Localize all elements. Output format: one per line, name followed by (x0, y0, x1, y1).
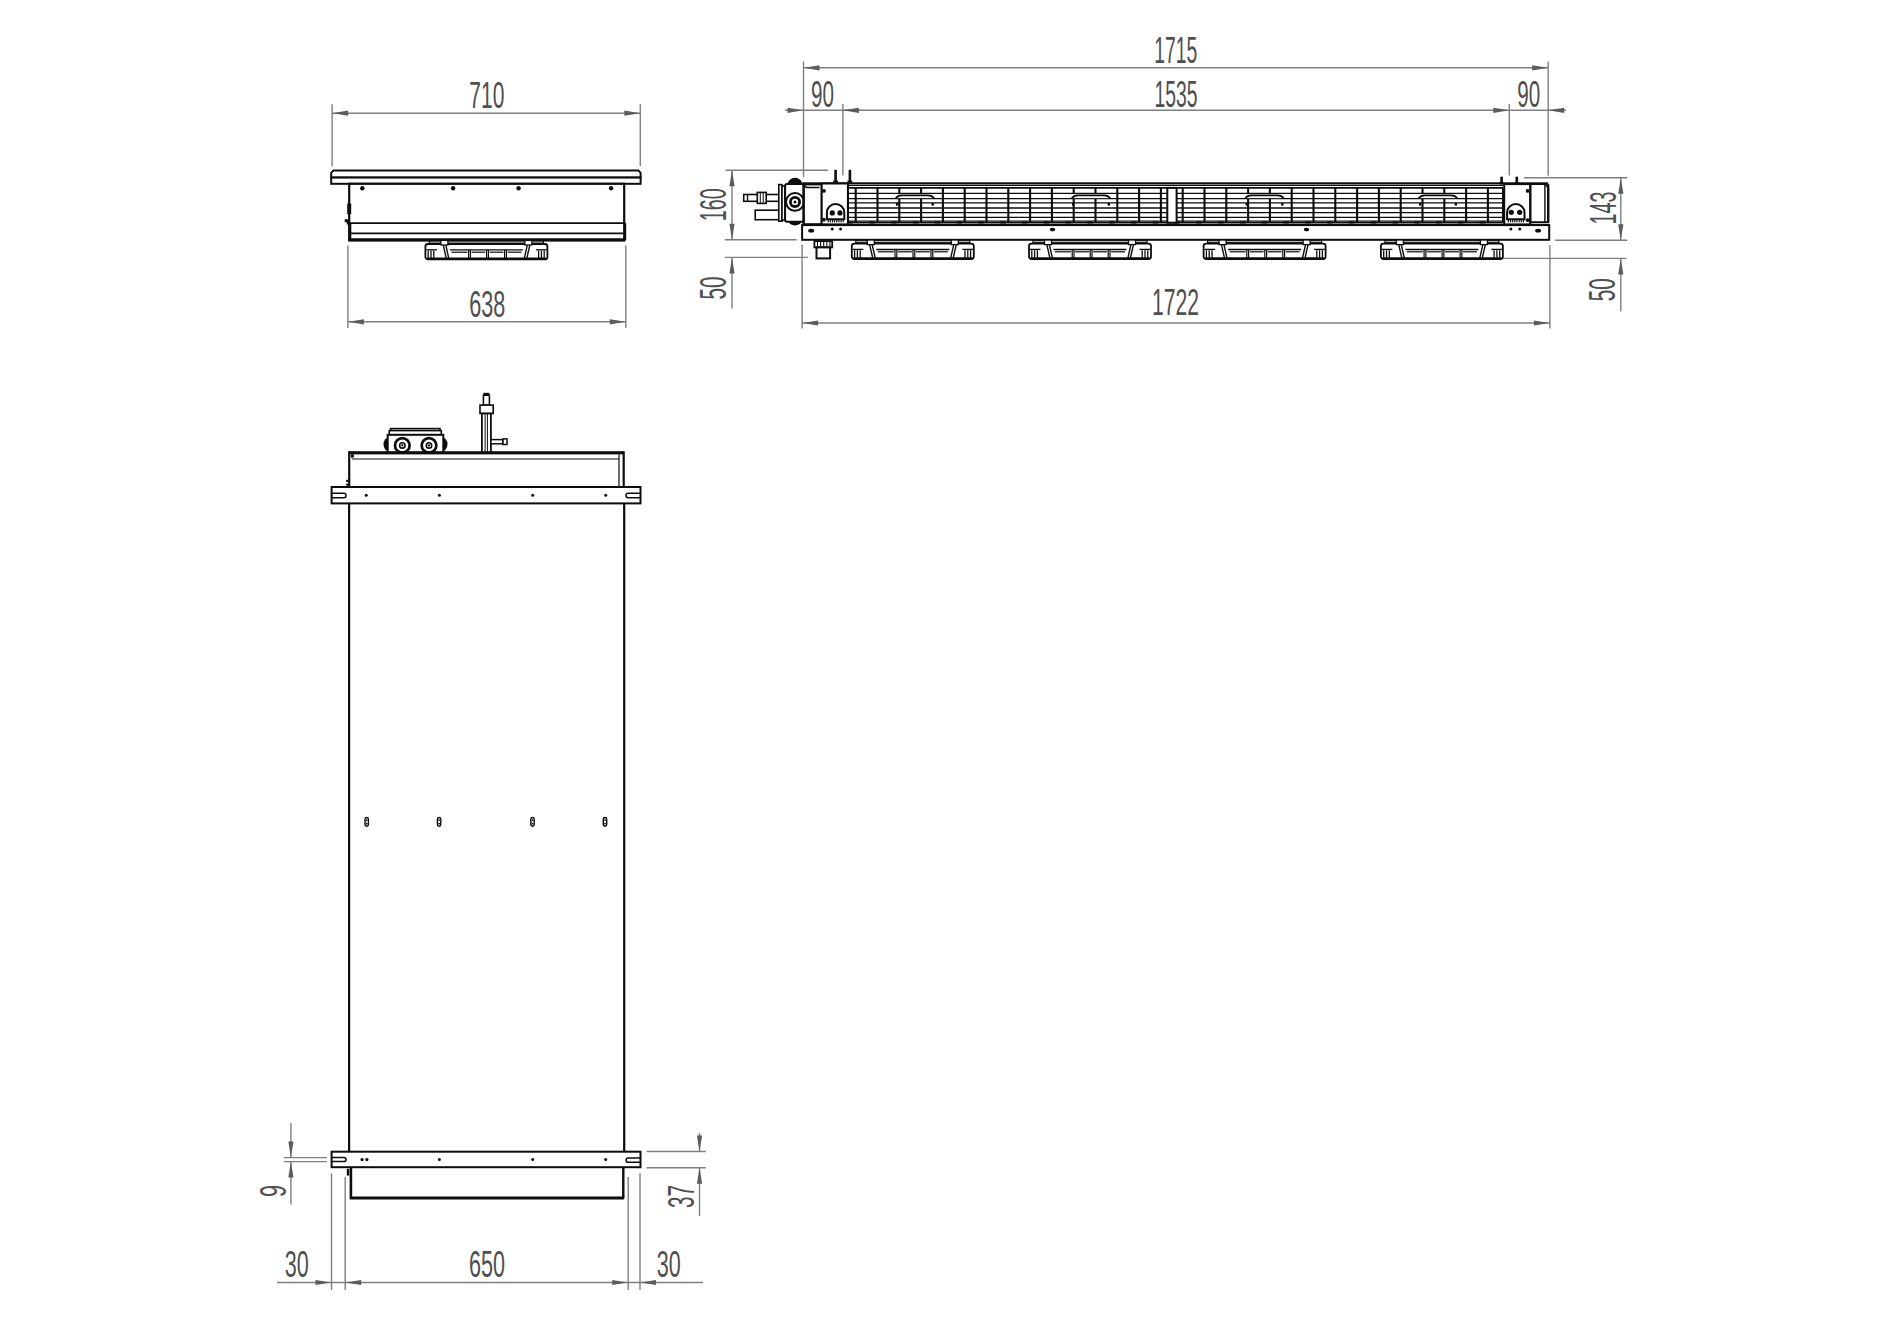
svg-text:30: 30 (285, 1244, 309, 1285)
svg-text:90: 90 (1517, 74, 1540, 115)
svg-text:160: 160 (693, 188, 734, 221)
svg-text:37: 37 (661, 1185, 702, 1208)
svg-text:50: 50 (693, 277, 734, 300)
svg-text:9: 9 (253, 1185, 294, 1197)
svg-text:1722: 1722 (1152, 282, 1199, 323)
svg-text:143: 143 (1583, 192, 1624, 225)
svg-text:650: 650 (469, 1244, 505, 1285)
svg-text:90: 90 (811, 74, 834, 115)
svg-text:1715: 1715 (1154, 30, 1197, 71)
svg-text:1535: 1535 (1155, 74, 1198, 115)
svg-text:638: 638 (469, 284, 505, 325)
svg-text:50: 50 (1582, 278, 1623, 301)
svg-text:710: 710 (469, 75, 504, 116)
svg-text:30: 30 (657, 1244, 681, 1285)
